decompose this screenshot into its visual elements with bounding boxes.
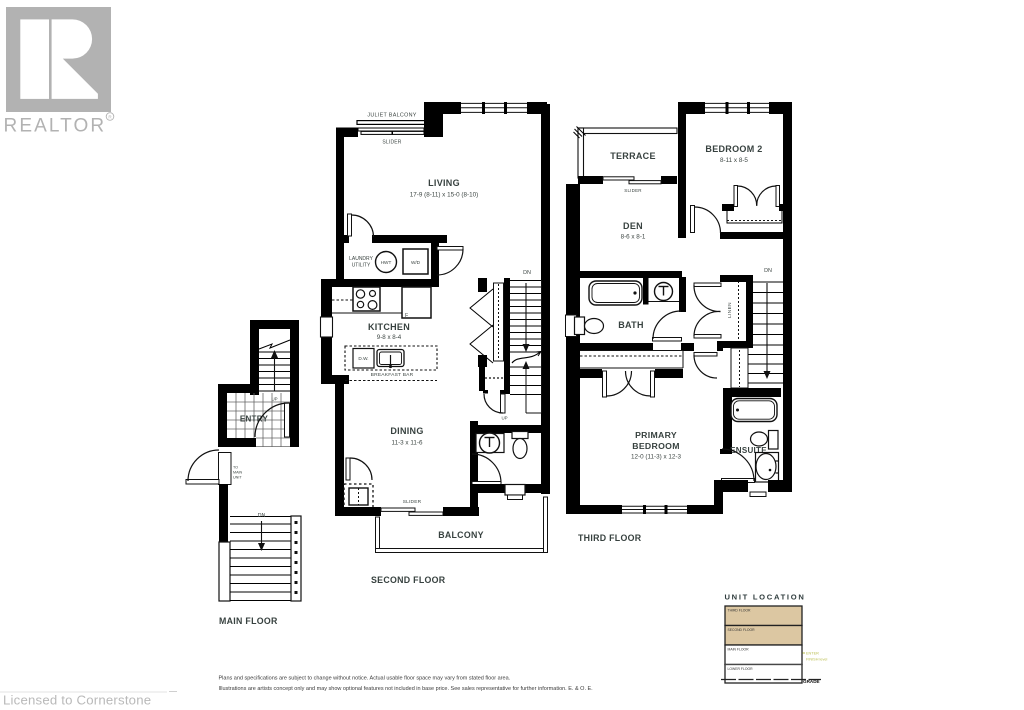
svg-text:GRADE: GRADE — [803, 679, 820, 684]
svg-text:BEDROOM: BEDROOM — [632, 441, 679, 451]
svg-text:SLIDER: SLIDER — [382, 140, 401, 146]
svg-text:TO: TO — [233, 466, 238, 470]
svg-text:W/D: W/D — [411, 260, 421, 265]
svg-text:DN: DN — [764, 268, 772, 274]
svg-text:SLIDER: SLIDER — [624, 188, 642, 193]
svg-text:JULIET BALCONY: JULIET BALCONY — [367, 113, 416, 119]
svg-text:BREAKFAST BAR: BREAKFAST BAR — [371, 372, 414, 378]
svg-text:DN: DN — [523, 270, 531, 276]
svg-text:Plans and specifications are s: Plans and specifications are subject to … — [219, 676, 511, 682]
svg-text:Licensed to Cornerstone: Licensed to Cornerstone — [3, 693, 151, 708]
svg-text:LAUNDRY: LAUNDRY — [349, 256, 373, 262]
svg-text:MAIN FLOOR: MAIN FLOOR — [728, 648, 750, 652]
svg-text:UNIT LOCATION: UNIT LOCATION — [725, 593, 806, 602]
svg-text:THIRD FLOOR: THIRD FLOOR — [728, 609, 752, 613]
svg-text:LIVING: LIVING — [428, 178, 460, 188]
svg-text:KITCHEN: KITCHEN — [368, 322, 410, 332]
svg-text:BATH: BATH — [618, 320, 644, 330]
svg-text:Illustrations are artists conc: Illustrations are artists concept only a… — [219, 686, 594, 692]
svg-text:ENTRY: ENTRY — [240, 415, 269, 424]
svg-text:REALTOR: REALTOR — [4, 116, 107, 137]
svg-text:8-6 x 8-1: 8-6 x 8-1 — [621, 234, 646, 241]
svg-text:FINISH level: FINISH level — [806, 658, 827, 662]
svg-text:D.W.: D.W. — [358, 356, 368, 361]
svg-text:UNIT: UNIT — [233, 476, 242, 480]
svg-text:ENTER: ENTER — [806, 652, 819, 656]
svg-text:LOWER FLOOR: LOWER FLOOR — [728, 667, 754, 671]
svg-text:DINING: DINING — [390, 426, 423, 436]
svg-text:BEDROOM 2: BEDROOM 2 — [705, 144, 762, 154]
svg-text:MAIN: MAIN — [233, 471, 243, 475]
svg-text:LINEN: LINEN — [727, 302, 732, 318]
svg-text:11-3 x 11-6: 11-3 x 11-6 — [392, 440, 423, 447]
svg-text:TERRACE: TERRACE — [610, 151, 656, 161]
svg-text:12-0 (11-3) x 12-3: 12-0 (11-3) x 12-3 — [631, 454, 681, 461]
svg-text:UP: UP — [501, 416, 507, 421]
svg-text:DEN: DEN — [623, 221, 643, 231]
svg-text:UTILITY: UTILITY — [352, 263, 371, 269]
svg-text:9-8 x 8-4: 9-8 x 8-4 — [377, 334, 402, 341]
svg-text:SLIDER: SLIDER — [403, 499, 422, 505]
svg-text:17-9 (8-11) x 15-0 (8-10): 17-9 (8-11) x 15-0 (8-10) — [410, 192, 478, 199]
svg-text:SECOND FLOOR: SECOND FLOOR — [371, 575, 446, 585]
svg-text:F: F — [405, 313, 408, 319]
svg-text:MAIN FLOOR: MAIN FLOOR — [219, 616, 278, 626]
svg-text:8-11 x 8-5: 8-11 x 8-5 — [720, 157, 748, 164]
svg-text:THIRD FLOOR: THIRD FLOOR — [578, 533, 642, 543]
svg-text:DN: DN — [258, 513, 266, 519]
svg-text:PRIMARY: PRIMARY — [635, 430, 677, 440]
svg-text:HWT: HWT — [381, 260, 392, 265]
svg-text:BALCONY: BALCONY — [438, 530, 484, 540]
svg-text:SECOND FLOOR: SECOND FLOOR — [728, 628, 756, 632]
